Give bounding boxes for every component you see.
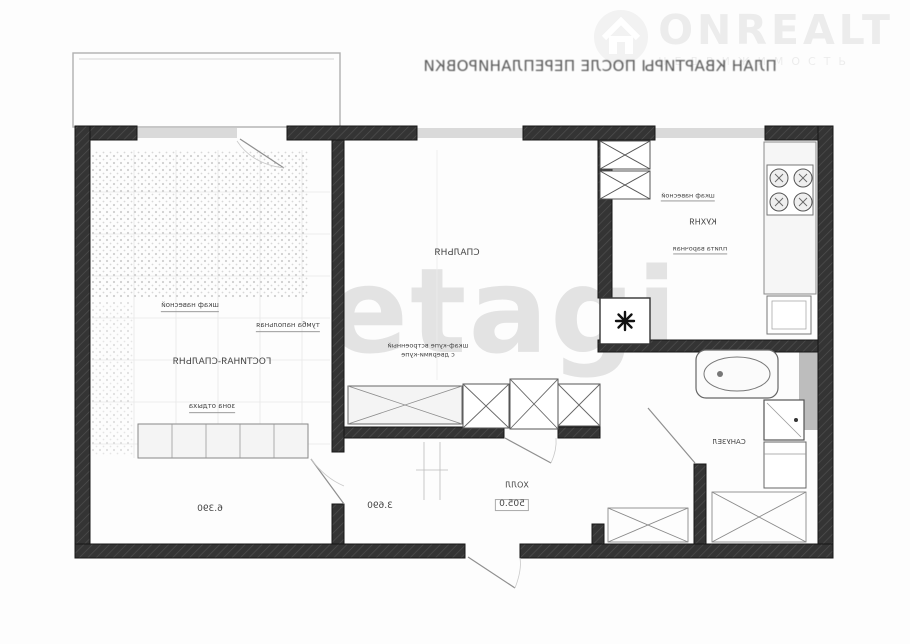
living-note-1: шкаф навесной bbox=[161, 302, 219, 312]
fridge-snowflake-icon bbox=[616, 312, 634, 330]
fridge bbox=[600, 298, 650, 344]
washing-machine bbox=[764, 400, 806, 488]
bathroom-label: САНУЗЕЛ bbox=[712, 439, 745, 447]
hall-label: ХОЛЛ bbox=[505, 482, 529, 491]
floor-plan-drawing bbox=[0, 0, 910, 644]
floorplan-image: etagi ONREALT НЕДВИЖИМОСТЬ bbox=[0, 0, 910, 644]
hall-wardrobes bbox=[608, 492, 806, 542]
living-note-3: зона отдыха bbox=[189, 403, 235, 413]
living-note-2: тумба напольная bbox=[256, 322, 320, 332]
kitchen-label: КУХНЯ bbox=[689, 219, 717, 228]
balcony-window bbox=[137, 128, 237, 138]
sink bbox=[767, 296, 811, 334]
carpet-texture bbox=[92, 150, 308, 298]
bathroom-door bbox=[648, 408, 695, 463]
kitchen-window bbox=[655, 128, 765, 138]
bedroom-door bbox=[505, 438, 551, 463]
kitchen-note-2: плита варочная bbox=[673, 245, 727, 254]
dimension-hall: 505.0 bbox=[495, 499, 529, 511]
bedroom-note-1: шкаф-купе встроенный bbox=[388, 342, 469, 349]
kitchen-note-1: шкаф навесной bbox=[661, 192, 715, 201]
kitchen-counter bbox=[764, 142, 816, 334]
bedroom-wardrobe bbox=[348, 379, 600, 429]
wall-texture-strip bbox=[92, 302, 134, 456]
dimension-mid: 3.690 bbox=[367, 502, 393, 512]
windows bbox=[137, 128, 765, 138]
bathtub-icon bbox=[696, 350, 778, 398]
balcony bbox=[73, 53, 340, 127]
dimension-living: 6.390 bbox=[197, 505, 223, 515]
plan-title: ПЛАН КВАРТИРЫ ПОСЛЕ ПЕРЕПЛАНИРОВКИ bbox=[423, 57, 776, 75]
living-cabinet bbox=[138, 424, 308, 458]
bedroom-note-2: с дверями-купе bbox=[401, 351, 455, 358]
living-room-label: ГОСТИНАЯ-СПАЛЬНЯ bbox=[173, 358, 272, 368]
hall-track-lines bbox=[416, 442, 448, 500]
bedroom-label: СПАЛЬНЯ bbox=[434, 249, 479, 259]
bedroom-window bbox=[417, 128, 523, 138]
entrance-door bbox=[468, 557, 515, 588]
bath-cabinet bbox=[764, 442, 806, 488]
